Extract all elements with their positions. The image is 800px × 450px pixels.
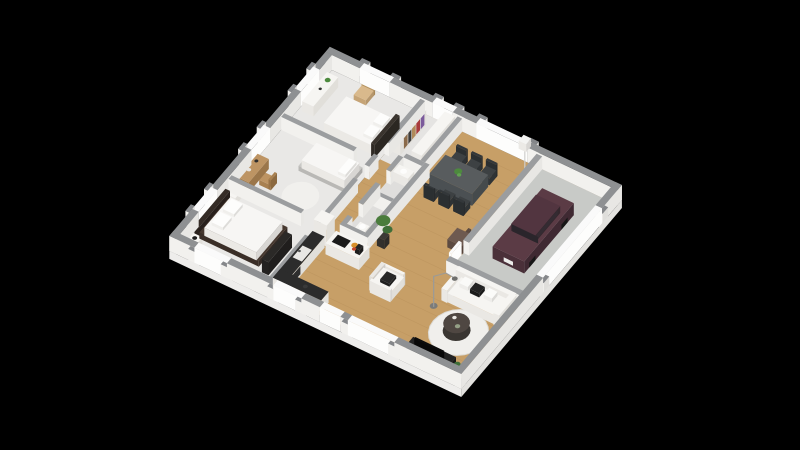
floor-plan-3d-render: [0, 0, 800, 450]
floor-plan-canvas: [0, 0, 800, 450]
